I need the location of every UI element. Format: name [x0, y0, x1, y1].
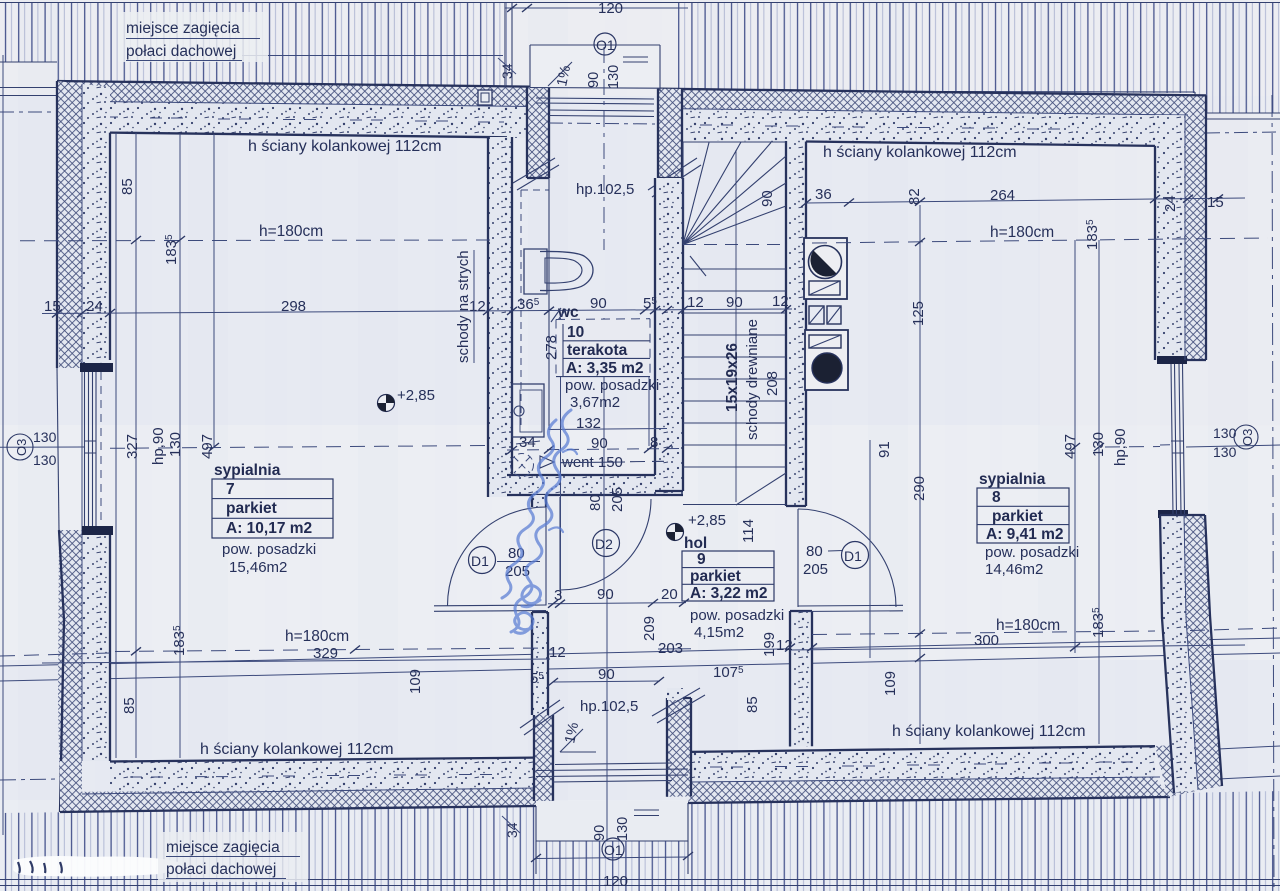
svg-text:pow. posadzki: pow. posadzki [985, 544, 1079, 561]
svg-text:90: 90 [726, 294, 743, 311]
svg-text:209: 209 [641, 616, 658, 641]
svg-text:+2,85: +2,85 [688, 512, 726, 529]
svg-text:90: 90 [586, 72, 602, 88]
svg-text:schody drewniane: schody drewniane [744, 319, 761, 440]
svg-text:114: 114 [740, 519, 757, 543]
svg-text:wc: wc [557, 304, 579, 321]
svg-text:497: 497 [199, 434, 216, 459]
svg-text:15x19x26: 15x19x26 [724, 343, 741, 412]
svg-text:miejsce zagięcia: miejsce zagięcia [126, 20, 240, 37]
svg-text:hol: hol [684, 535, 707, 552]
svg-text:90: 90 [592, 825, 608, 841]
svg-text:15: 15 [44, 298, 61, 315]
svg-text:A: 3,22 m2: A: 3,22 m2 [690, 585, 768, 602]
svg-text:h ściany kolankowej 112cm: h ściany kolankowej 112cm [248, 138, 442, 155]
svg-text:120: 120 [598, 0, 623, 17]
svg-text:130: 130 [1213, 444, 1237, 460]
svg-text:80: 80 [806, 543, 823, 560]
svg-text:parkiet: parkiet [226, 500, 277, 517]
svg-text:12: 12 [776, 637, 793, 654]
svg-text:20: 20 [661, 586, 678, 603]
svg-text:+2,85: +2,85 [397, 387, 435, 404]
svg-text:24: 24 [1162, 195, 1179, 212]
svg-text:8: 8 [992, 489, 1001, 506]
svg-text:sypialnia: sypialnia [214, 462, 281, 479]
svg-text:h=180cm: h=180cm [996, 617, 1060, 634]
svg-text:D1: D1 [844, 548, 862, 564]
svg-text:80: 80 [587, 494, 604, 511]
svg-text:327: 327 [124, 434, 141, 459]
svg-text:125: 125 [910, 301, 927, 326]
svg-text:300: 300 [974, 632, 999, 649]
svg-text:130: 130 [33, 429, 57, 445]
svg-text:130: 130 [615, 817, 631, 841]
svg-text:pow. posadzki: pow. posadzki [690, 607, 784, 624]
svg-text:12: 12 [549, 644, 566, 661]
svg-text:36: 36 [815, 186, 832, 203]
svg-text:12: 12 [772, 293, 789, 310]
svg-text:parkiet: parkiet [690, 568, 741, 585]
svg-text:sypialnia: sypialnia [979, 471, 1046, 488]
svg-text:109: 109 [882, 671, 899, 696]
svg-text:205: 205 [609, 487, 626, 512]
svg-text:3: 3 [554, 587, 562, 604]
svg-text:109: 109 [407, 669, 424, 694]
svg-text:h ściany kolankowej 112cm: h ściany kolankowej 112cm [823, 144, 1017, 161]
svg-text:90: 90 [591, 435, 608, 452]
svg-text:82: 82 [906, 188, 923, 205]
svg-text:91: 91 [876, 441, 893, 458]
svg-text:O3: O3 [1240, 429, 1255, 446]
svg-text:90: 90 [759, 190, 776, 207]
svg-text:85: 85 [121, 697, 138, 714]
svg-text:O3: O3 [14, 439, 29, 456]
svg-text:9: 9 [697, 551, 706, 568]
svg-text:pow. posadzki: pow. posadzki [222, 541, 316, 558]
svg-text:8: 8 [650, 434, 658, 451]
svg-text:10: 10 [567, 324, 584, 341]
svg-text:130: 130 [1090, 432, 1107, 457]
svg-text:schody na strych: schody na strych [455, 250, 472, 363]
svg-text:D1: D1 [471, 553, 489, 569]
svg-text:terakota: terakota [567, 342, 628, 359]
svg-text:203: 203 [658, 640, 683, 657]
svg-text:130: 130 [1213, 425, 1237, 441]
svg-text:3,67m2: 3,67m2 [570, 394, 620, 411]
svg-text:14,46m2: 14,46m2 [985, 561, 1043, 578]
svg-text:132: 132 [576, 415, 601, 432]
svg-text:parkiet: parkiet [992, 508, 1043, 525]
svg-text:7: 7 [226, 481, 235, 498]
svg-text:hp.102,5: hp.102,5 [580, 698, 638, 715]
svg-text:h ściany kolankowej 112cm: h ściany kolankowej 112cm [200, 741, 394, 758]
svg-text:połaci dachowej: połaci dachowej [166, 861, 276, 878]
svg-text:D2: D2 [595, 536, 613, 552]
svg-text:130: 130 [606, 65, 622, 89]
svg-text:85: 85 [744, 696, 761, 713]
svg-text:h=180cm: h=180cm [990, 224, 1054, 241]
svg-text:85: 85 [119, 178, 136, 195]
svg-text:120: 120 [603, 873, 628, 890]
svg-text:miejsce zagięcia: miejsce zagięcia [166, 839, 280, 856]
svg-text:4,15m2: 4,15m2 [694, 624, 744, 641]
svg-text:hp,90: hp,90 [1112, 428, 1129, 466]
svg-text:15,46m2: 15,46m2 [229, 559, 287, 576]
svg-text:12: 12 [687, 294, 704, 311]
svg-text:278: 278 [543, 335, 560, 360]
svg-text:90: 90 [598, 666, 615, 683]
svg-text:298: 298 [281, 298, 306, 315]
svg-text:130: 130 [167, 432, 184, 457]
svg-text:h=180cm: h=180cm [259, 223, 323, 240]
svg-text:h=180cm: h=180cm [285, 628, 349, 645]
svg-text:208: 208 [764, 371, 781, 396]
svg-text:pow. posadzki: pow. posadzki [565, 377, 659, 394]
svg-text:A: 9,41 m2: A: 9,41 m2 [986, 526, 1064, 543]
svg-text:205: 205 [803, 561, 828, 578]
svg-text:290: 290 [911, 476, 928, 501]
svg-text:264: 264 [990, 187, 1015, 204]
svg-text:329: 329 [313, 645, 338, 662]
svg-text:hp,90: hp,90 [150, 427, 167, 465]
svg-text:A: 10,17 m2: A: 10,17 m2 [226, 520, 312, 537]
svg-text:O1: O1 [604, 842, 623, 858]
svg-text:497: 497 [1062, 434, 1079, 459]
svg-text:h ściany kolankowej 112cm: h ściany kolankowej 112cm [892, 723, 1086, 740]
svg-text:A: 3,35 m2: A: 3,35 m2 [566, 360, 644, 377]
svg-text:15: 15 [1207, 194, 1224, 211]
svg-text:90: 90 [597, 586, 614, 603]
svg-text:24: 24 [86, 298, 103, 315]
svg-text:hp.102,5: hp.102,5 [576, 181, 634, 198]
svg-text:90: 90 [590, 295, 607, 312]
svg-text:130: 130 [33, 452, 57, 468]
svg-text:O1: O1 [596, 37, 615, 53]
svg-text:połaci dachowej: połaci dachowej [126, 43, 236, 60]
